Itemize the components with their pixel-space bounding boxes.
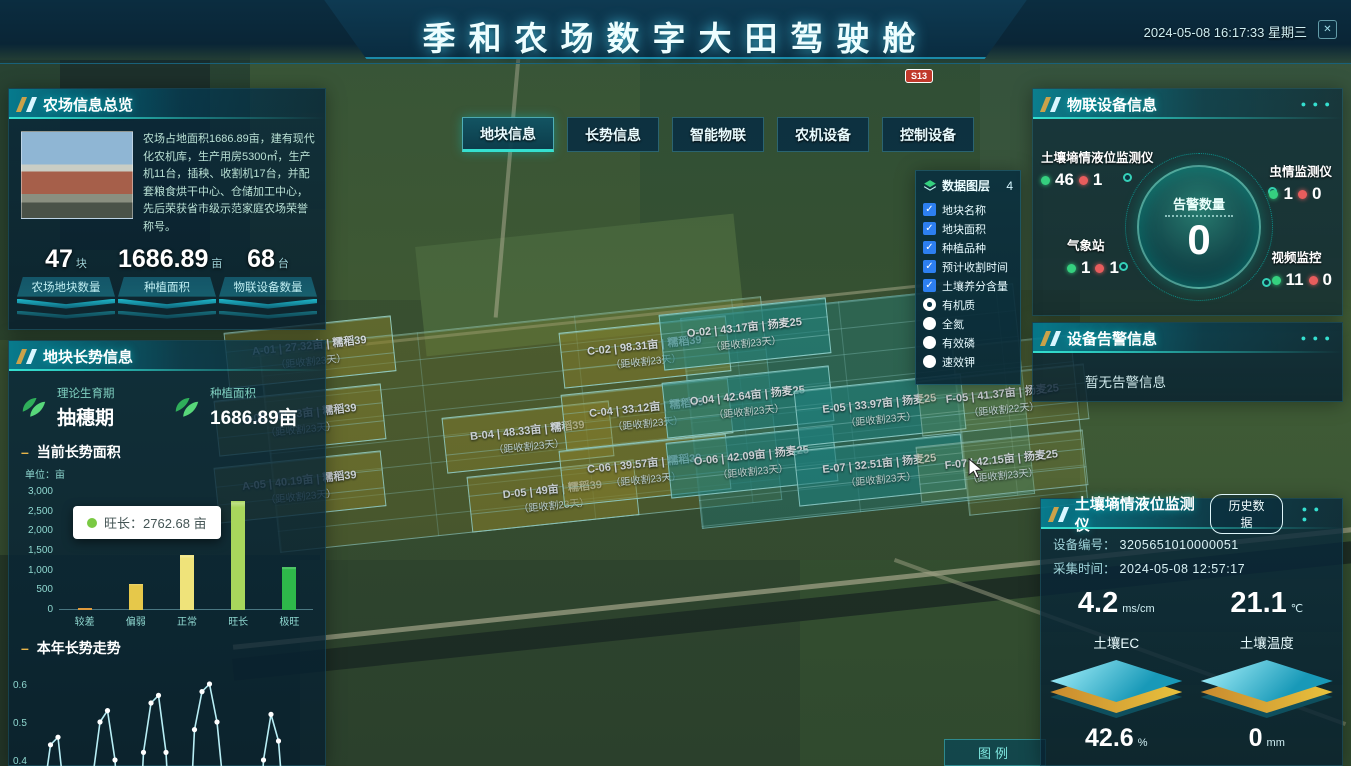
tab-0[interactable]: 地块信息 [462, 117, 554, 152]
iot-device-3: 视频监控110 [1272, 247, 1332, 290]
data-point [192, 727, 197, 732]
line-section-title: 本年长势走势 [37, 638, 121, 658]
layer-checkbox-4[interactable]: ✓土壤养分含量 [923, 276, 1013, 295]
gauge-node [1119, 262, 1128, 271]
bar-chart-unit: 单位：亩 [25, 466, 65, 481]
farm-description: 农场占地面积1686.89亩，建有现代化农机库，生产用房5300㎡，生产机11台… [143, 131, 315, 237]
data-point [55, 735, 60, 740]
layer-checkbox-0[interactable]: ✓地块名称 [923, 200, 1013, 219]
device-no-label: 设备编号： [1053, 538, 1116, 552]
iot-device-1: 虫情监测仪10 [1269, 161, 1332, 204]
bar-4 [282, 567, 296, 610]
chart-tooltip: 旺长：2762.68 亩 [73, 506, 221, 539]
chevron-icon [219, 311, 317, 319]
header-slash-icon [26, 97, 37, 112]
x-tick: 正常 [161, 613, 213, 628]
collect-time-row: 采集时间：2024-05-08 12:57:17 [1041, 553, 1342, 577]
more-menu-icon[interactable]: ● ● ● [1302, 504, 1332, 524]
panel-header: 土壤墒情液位监测仪 历史数据 ● ● ● [1041, 499, 1342, 529]
stage-label: 种植面积 [210, 385, 298, 401]
layer-label: 种植品种 [942, 240, 986, 256]
metric-bottom-unit: % [1138, 737, 1148, 749]
line-y-tick: 0.5 [13, 718, 27, 729]
farm-stat-1: 1686.89亩种植面积 [118, 245, 216, 319]
map-legend-button[interactable]: 图例 [944, 739, 1046, 766]
panel-map-layers: 数据图层 4 ✓地块名称✓地块面积✓种植品种✓预计收割时间✓土壤养分含量有机质全… [915, 170, 1021, 385]
gauge-label: 告警数量 [1173, 194, 1225, 213]
online-count: 1 [1081, 258, 1090, 278]
chevron-icon [118, 311, 216, 319]
panel-plot-growth: 地块长势信息 理论生育期 抽穗期 种植面积 1686.89亩 [8, 340, 326, 766]
section-dash-icon: – [21, 640, 29, 656]
tab-4[interactable]: 控制设备 [882, 117, 974, 152]
header-slash-icon [1050, 97, 1061, 112]
device-name: 视频监控 [1272, 247, 1332, 266]
stat-value: 47块 [17, 245, 115, 274]
header-slash-icon [1058, 507, 1069, 522]
online-count: 1 [1283, 184, 1292, 204]
growth-stage-item: 种植面积 1686.89亩 [172, 385, 319, 430]
mouse-cursor [968, 458, 985, 480]
chevron-icon [118, 299, 216, 309]
panel-soil-monitor: 土壤墒情液位监测仪 历史数据 ● ● ● 设备编号：32056510100000… [1040, 498, 1343, 766]
tab-2[interactable]: 智能物联 [672, 117, 764, 152]
radio-label: 有机质 [942, 297, 975, 313]
radio-label: 速效钾 [942, 354, 975, 370]
line-y-tick: 0.6 [13, 680, 27, 691]
data-point [207, 681, 212, 686]
growth-stage-row: 理论生育期 抽穗期 种植面积 1686.89亩 [9, 371, 325, 436]
data-point [48, 742, 53, 747]
header-slash-icon [1048, 507, 1059, 522]
data-point [105, 708, 110, 713]
farm-stat-2: 68台物联设备数量 [219, 245, 317, 319]
bar-2 [180, 555, 194, 610]
layer-checkbox-1[interactable]: ✓地块面积 [923, 219, 1013, 238]
panel-title: 物联设备信息 [1067, 94, 1157, 115]
growth-stage-item: 理论生育期 抽穗期 [19, 385, 166, 430]
nutrient-radio-1[interactable]: 全氮 [923, 314, 1013, 333]
bar-0 [78, 608, 92, 610]
layer-label: 预计收割时间 [942, 259, 1008, 275]
leaf-icon [19, 393, 49, 423]
online-dot [1067, 264, 1076, 273]
device-name: 土壤墒情液位监测仪 [1041, 147, 1154, 166]
checkbox-icon[interactable]: ✓ [923, 222, 936, 235]
metric-bottom-unit: mm [1267, 737, 1285, 749]
growth-bar-chart: 单位：亩 旺长：2762.68 亩 05001,0001,5002,0002,5… [15, 466, 319, 632]
layers-count: 4 [1006, 179, 1013, 193]
offline-dot [1079, 176, 1088, 185]
y-tick: 500 [17, 584, 53, 595]
checkbox-icon[interactable]: ✓ [923, 241, 936, 254]
y-tick: 0 [17, 604, 53, 615]
dashboard-root: A-01 | 27.32亩 | 糯稻39（距收割23天）A-03 | 49.23… [0, 0, 1351, 766]
nutrient-radio-2[interactable]: 有效磷 [923, 333, 1013, 352]
metric-label: 土壤EC [1046, 632, 1186, 652]
collect-time-label: 采集时间： [1053, 562, 1116, 576]
panel-header: 地块长势信息 [9, 341, 325, 371]
stat-label: 物联设备数量 [219, 277, 317, 297]
soil-metric-0: 4.2ms/cm土壤EC42.6% [1046, 587, 1186, 753]
radio-label: 全氮 [942, 316, 964, 332]
panel-device-alarms: 设备告警信息 ● ● ● 暂无告警信息 [1032, 322, 1343, 402]
more-menu-icon[interactable]: ● ● ● [1301, 99, 1332, 109]
gauge-value: 0 [1187, 219, 1210, 261]
header-slash-icon [16, 97, 27, 112]
layers-title: 数据图层 [942, 177, 990, 194]
main-tabs: 地块信息长势信息智能物联农机设备控制设备 [462, 117, 974, 152]
device-counts: 461 [1041, 170, 1154, 190]
layer-label: 地块名称 [942, 202, 986, 218]
data-point [112, 757, 117, 762]
y-tick: 2,500 [17, 506, 53, 517]
soil-metric-1: 21.1℃土壤温度0mm [1197, 587, 1337, 753]
leaf-icon [172, 393, 202, 423]
bar-section-title: 当前长势面积 [37, 442, 121, 462]
panel-title: 地块长势信息 [43, 346, 133, 367]
panel-farm-overview: 农场信息总览 农场占地面积1686.89亩，建有现代化农机库，生产用房5300㎡… [8, 88, 326, 330]
y-tick: 2,000 [17, 525, 53, 536]
section-dash-icon: – [21, 444, 29, 460]
bar-1 [129, 584, 143, 610]
iot-device-2: 气象站11 [1067, 235, 1119, 278]
stat-unit: 块 [76, 258, 87, 270]
line-chart-svg: 0.60.50.4 [9, 660, 327, 766]
header-slash-icon [1040, 331, 1051, 346]
layer-label: 地块面积 [942, 221, 986, 237]
header: 季和农场数字大田驾驶舱 2024-05-08 16:17:33 星期三 ✕ [0, 0, 1351, 64]
alarm-gauge: 告警数量 0 [1137, 165, 1261, 289]
collect-time-value: 2024-05-08 12:57:17 [1120, 562, 1246, 576]
radio-icon[interactable] [923, 336, 936, 349]
checkbox-icon[interactable]: ✓ [923, 260, 936, 273]
y-tick: 1,500 [17, 545, 53, 556]
online-dot [1041, 176, 1050, 185]
nutrient-radio-0[interactable]: 有机质 [923, 295, 1013, 314]
panel-iot-devices: 物联设备信息 ● ● ● 告警数量 0 土壤墒情液位监测仪461虫情监测仪10气… [1032, 88, 1343, 316]
header-slash-icon [1050, 331, 1061, 346]
data-point [276, 738, 281, 743]
layer-label: 土壤养分含量 [942, 278, 1008, 294]
tooltip-text: 旺长：2762.68 亩 [104, 513, 207, 532]
farm-stat-0: 47块农场地块数量 [17, 245, 115, 319]
header-slash-icon [1040, 97, 1051, 112]
farm-photo [21, 131, 133, 219]
metric-unit: ℃ [1291, 603, 1303, 615]
device-counts: 10 [1269, 184, 1332, 204]
metric-value: 4.2ms/cm [1046, 587, 1186, 620]
device-counts: 110 [1272, 270, 1332, 290]
tooltip-dot [87, 518, 97, 528]
layers-icon [923, 179, 937, 193]
stat-unit: 台 [278, 258, 289, 270]
data-point [163, 750, 168, 755]
close-button[interactable]: ✕ [1318, 20, 1337, 39]
chevron-icon [219, 299, 317, 309]
farm-stats-row: 47块农场地块数量1686.89亩种植面积68台物联设备数量 [9, 243, 325, 319]
iot-device-0: 土壤墒情液位监测仪461 [1041, 147, 1154, 190]
gauge-node [1262, 278, 1271, 287]
panel-title: 设备告警信息 [1067, 328, 1157, 349]
metric-bottom-value: 0mm [1197, 724, 1337, 753]
checkbox-icon[interactable]: ✓ [923, 203, 936, 216]
layers-title-row: 数据图层 4 [923, 177, 1013, 194]
device-no-value: 3205651010000051 [1120, 538, 1239, 552]
x-tick: 偏弱 [110, 613, 162, 628]
stat-label: 种植面积 [118, 277, 216, 297]
data-point [199, 689, 204, 694]
panel-header: 设备告警信息 ● ● ● [1033, 323, 1342, 353]
line-y-tick: 0.4 [13, 756, 27, 766]
data-point [97, 719, 102, 724]
device-name: 虫情监测仪 [1269, 161, 1332, 180]
datetime-display: 2024-05-08 16:17:33 星期三 [1144, 22, 1307, 41]
offline-dot [1095, 264, 1104, 273]
more-menu-icon[interactable]: ● ● ● [1301, 333, 1332, 343]
panel-header: 农场信息总览 [9, 89, 325, 119]
section-title-bar: – 当前长势面积 [9, 436, 325, 462]
stage-value: 1686.89亩 [210, 403, 298, 430]
data-point [141, 750, 146, 755]
data-point [261, 757, 266, 762]
offline-dot [1309, 276, 1318, 285]
chevron-icon [17, 311, 115, 319]
tab-3[interactable]: 农机设备 [777, 117, 869, 152]
device-name: 气象站 [1067, 235, 1119, 254]
x-tick: 旺长 [212, 613, 264, 628]
section-title-bar: – 本年长势走势 [9, 632, 325, 658]
online-count: 46 [1055, 170, 1074, 190]
panel-title: 农场信息总览 [43, 94, 133, 115]
offline-count: 1 [1093, 170, 1102, 190]
road-badge: S13 [905, 69, 933, 83]
data-point [268, 712, 273, 717]
stat-label: 农场地块数量 [17, 277, 115, 297]
stage-label: 理论生育期 [57, 385, 115, 401]
bar-3 [231, 501, 245, 610]
data-point [214, 719, 219, 724]
header-slash-icon [26, 349, 37, 364]
alarm-empty-text: 暂无告警信息 [1033, 353, 1342, 391]
device-counts: 11 [1067, 258, 1119, 278]
layer-checkbox-2[interactable]: ✓种植品种 [923, 238, 1013, 257]
stat-value: 1686.89亩 [118, 245, 216, 274]
metric-bottom-value: 42.6% [1046, 724, 1186, 753]
radio-icon[interactable] [923, 298, 936, 311]
metric-unit: ms/cm [1122, 603, 1154, 615]
x-tick: 较差 [59, 613, 111, 628]
x-tick: 极旺 [263, 613, 315, 628]
y-tick: 3,000 [17, 486, 53, 497]
radio-icon[interactable] [923, 317, 936, 330]
offline-count: 0 [1323, 270, 1332, 290]
online-dot [1269, 190, 1278, 199]
y-tick: 1,000 [17, 565, 53, 576]
radio-icon[interactable] [923, 355, 936, 368]
data-point [156, 693, 161, 698]
stage-value: 抽穗期 [57, 403, 115, 430]
chevron-icon [17, 299, 115, 309]
metric-label: 土壤温度 [1197, 632, 1337, 652]
stat-value: 68台 [219, 245, 317, 274]
gauge-face: 告警数量 0 [1137, 165, 1261, 289]
radio-label: 有效磷 [942, 335, 975, 351]
header-slash-icon [16, 349, 27, 364]
metric-value: 21.1℃ [1197, 587, 1337, 620]
soil-metrics-grid: 4.2ms/cm土壤EC42.6%21.1℃土壤温度0mm [1041, 587, 1342, 753]
offline-count: 1 [1109, 258, 1118, 278]
checkbox-icon[interactable]: ✓ [923, 279, 936, 292]
data-point [148, 700, 153, 705]
offline-count: 0 [1312, 184, 1321, 204]
offline-dot [1298, 190, 1307, 199]
history-data-button[interactable]: 历史数据 [1210, 494, 1282, 534]
tab-1[interactable]: 长势信息 [567, 117, 659, 152]
panel-title: 土壤墒情液位监测仪 [1075, 493, 1206, 535]
layer-checkbox-3[interactable]: ✓预计收割时间 [923, 257, 1013, 276]
online-count: 11 [1286, 270, 1304, 290]
online-dot [1272, 276, 1281, 285]
growth-line-chart: 0.60.50.4 [9, 660, 325, 766]
panel-header: 物联设备信息 ● ● ● [1033, 89, 1342, 119]
pyramid-icon [1197, 660, 1337, 722]
pyramid-icon [1046, 660, 1186, 722]
nutrient-radio-3[interactable]: 速效钾 [923, 352, 1013, 371]
